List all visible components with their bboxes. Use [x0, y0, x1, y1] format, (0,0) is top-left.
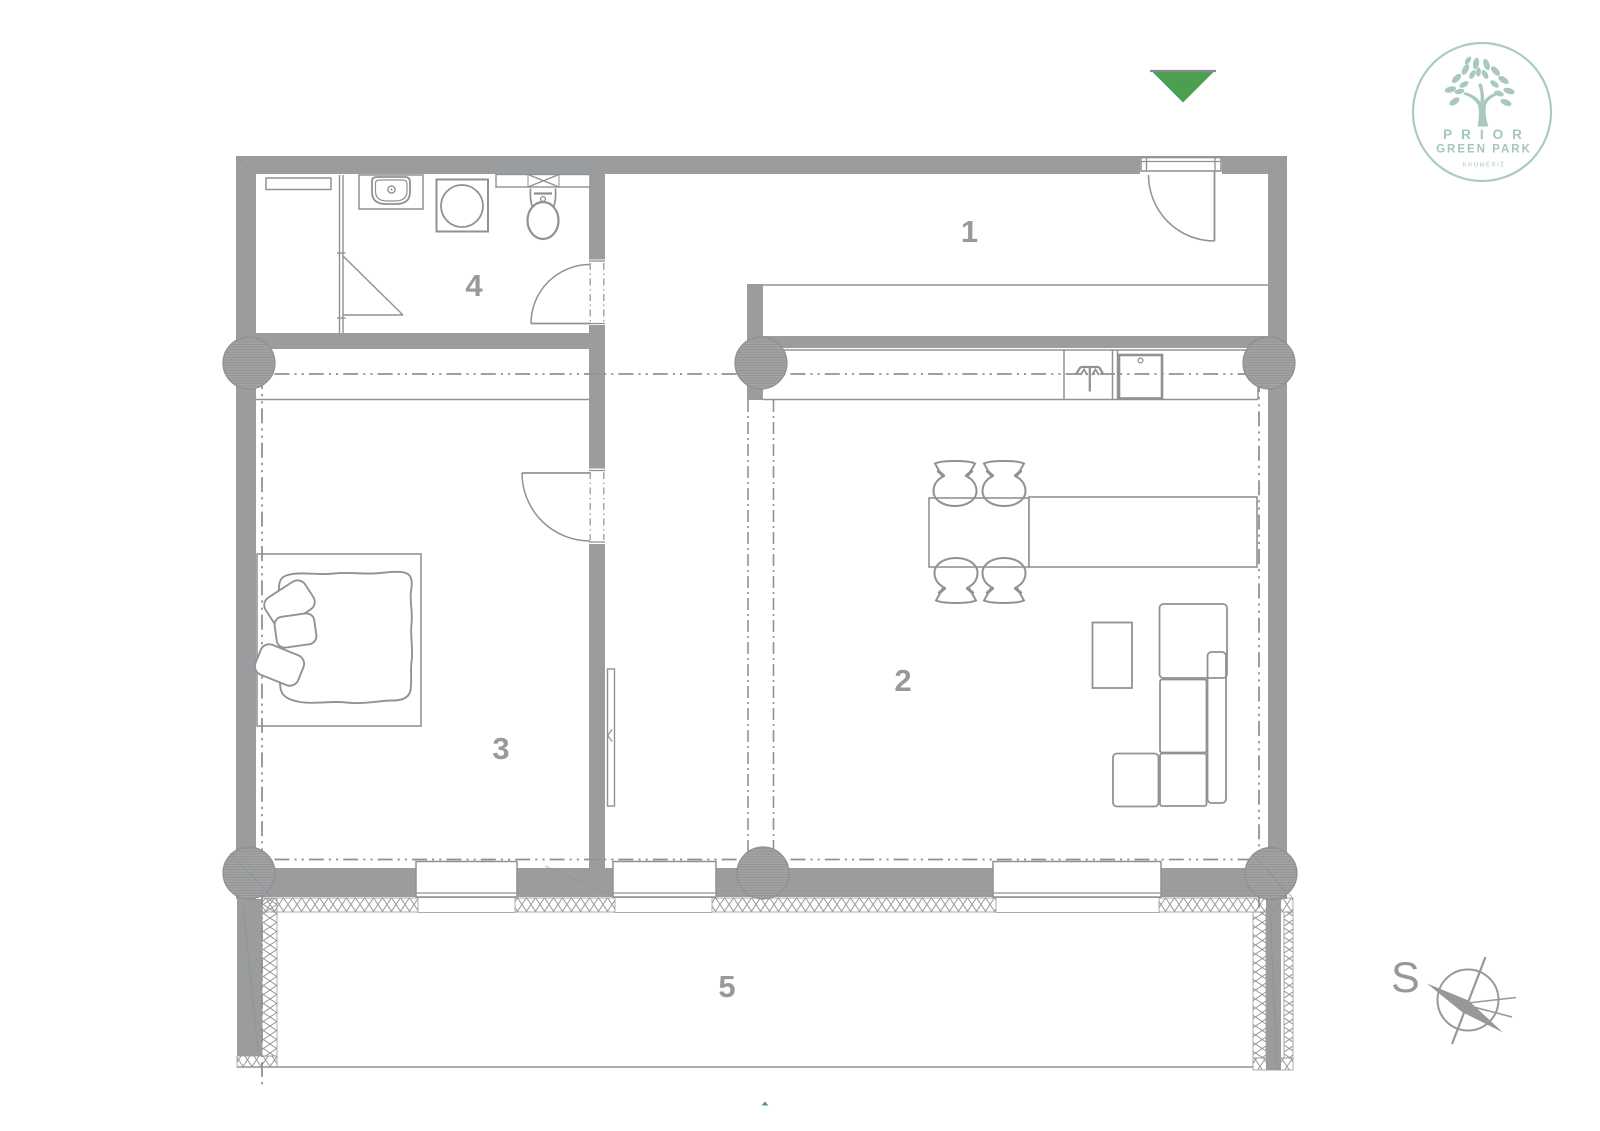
svg-text:3: 3 [492, 731, 509, 766]
svg-text:1: 1 [961, 214, 978, 249]
svg-text:2: 2 [894, 663, 911, 698]
svg-text:PRIOR: PRIOR [1443, 127, 1531, 142]
svg-text:GREEN PARK: GREEN PARK [1436, 144, 1532, 156]
svg-text:4: 4 [465, 268, 483, 303]
svg-text:S: S [1391, 954, 1420, 1002]
svg-text:KROMĚŘÍŽ: KROMĚŘÍŽ [1463, 161, 1506, 169]
svg-text:5: 5 [718, 969, 735, 1004]
